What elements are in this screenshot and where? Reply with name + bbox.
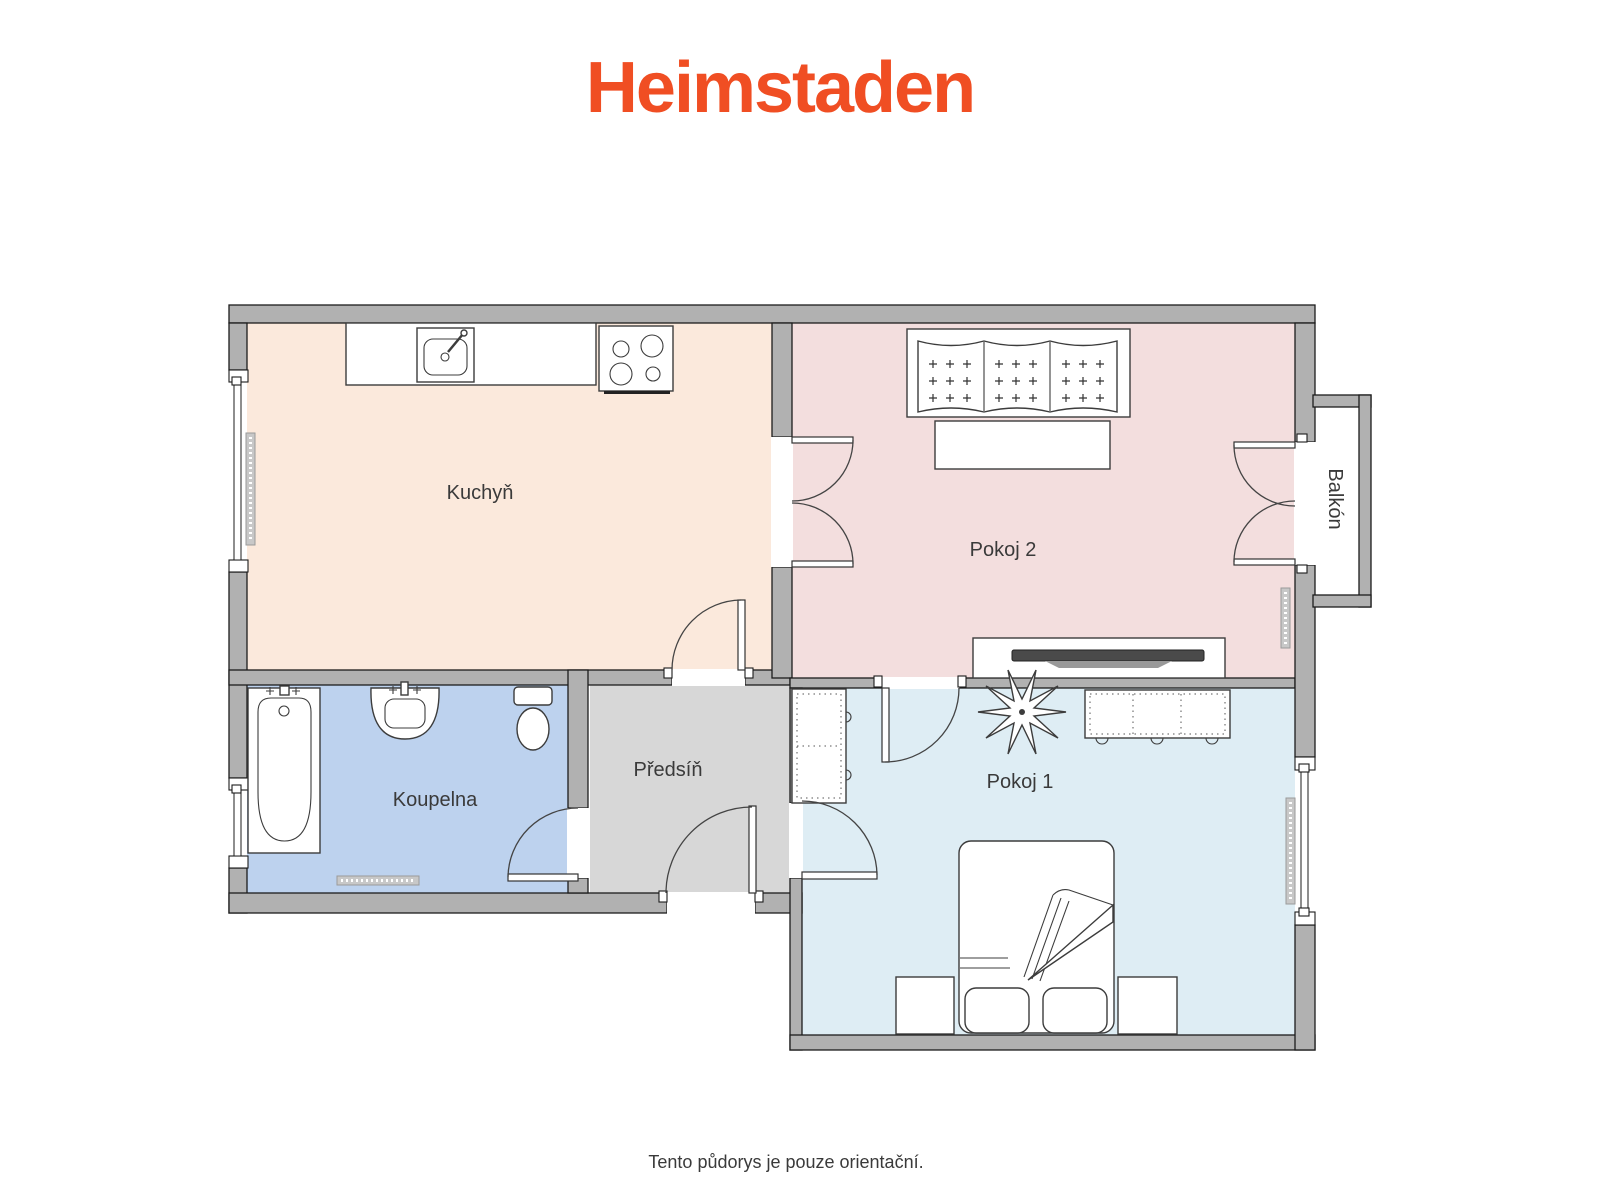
wall-kuchyn-pokoj2-b (772, 567, 792, 678)
wall-predsin-pokoj1-b (790, 878, 802, 1050)
koupelna-window (234, 790, 241, 856)
jamb-notch (745, 668, 753, 678)
footer-disclaimer: Tento půdorys je pouze orientační. (648, 1152, 923, 1172)
wall-right-c (1295, 925, 1315, 1050)
sofa (907, 329, 1130, 417)
wall-right-a (1295, 323, 1315, 442)
jamb-notch (664, 668, 672, 678)
balkon-wall-right (1359, 395, 1371, 607)
pokoj1-radiator (1286, 798, 1295, 904)
bathtub (248, 686, 320, 853)
wall-top (229, 305, 1315, 323)
kuchyn-window-sill-bottom (229, 560, 248, 572)
room-label-pokoj2: Pokoj 2 (970, 539, 1037, 561)
tv (1012, 650, 1204, 661)
kitchen-fixtures (346, 323, 673, 394)
wall-pokoj1-bottom (790, 1035, 1315, 1050)
koupelna-radiator (337, 876, 419, 885)
jamb-notch (1297, 434, 1307, 442)
kitchen-sink (417, 328, 474, 382)
opening-predsin-pokoj1 (789, 803, 803, 878)
opening-balkon (1294, 442, 1316, 565)
jamb-notch (874, 676, 882, 687)
pokoj1-window-handle-2 (1299, 908, 1309, 916)
kuchyn-window-handle (232, 377, 241, 385)
room-label-koupelna: Koupelna (393, 789, 478, 811)
wardrobe (792, 689, 851, 803)
room-label-kuchyn: Kuchyň (447, 482, 514, 504)
wall-bottom-left-a (229, 893, 667, 913)
coffee-table (935, 421, 1110, 469)
toilet (514, 687, 552, 750)
tv-shadow (1045, 661, 1172, 668)
balkon-wall-bottom (1313, 595, 1371, 607)
heimstaden-logo: Heimstaden (586, 48, 974, 128)
wall-pokoj2-pokoj1-a (790, 678, 882, 688)
pillow-right (1043, 988, 1107, 1033)
jamb-notch (958, 676, 966, 687)
pokoj1-window-handle (1299, 764, 1309, 772)
opening-koupelna (567, 808, 589, 878)
wall-left-a (229, 323, 247, 370)
dresser (1085, 690, 1230, 744)
stove-front (604, 391, 670, 394)
kuchyn-radiator (246, 433, 255, 545)
opening-kuchyn-predsin (672, 669, 745, 686)
pokoj1-window (1301, 770, 1308, 912)
jamb-notch (1297, 565, 1307, 573)
pillow-left (965, 988, 1029, 1033)
kuchyn-window (234, 382, 241, 560)
pokoj2-radiator (1281, 588, 1290, 648)
wall-kuchyn-pokoj2-a (772, 323, 792, 437)
room-label-predsin: Předsíň (634, 759, 703, 781)
stove (599, 326, 673, 394)
nightstand-left (896, 977, 954, 1034)
floorplan-svg: Kuchyň Pokoj 2 Koupelna Předsíň Pokoj 1 … (0, 0, 1600, 1200)
opening-entrance (667, 892, 755, 914)
tv-stand (973, 638, 1225, 678)
room-label-pokoj1: Pokoj 1 (987, 771, 1054, 793)
room-predsin-floor (590, 685, 790, 893)
wall-kuchyn-bottom-a (229, 670, 672, 685)
koupelna-window-sill-bottom (229, 856, 248, 868)
koupelna-window-handle (232, 785, 241, 793)
wall-koupelna-predsin-a (568, 670, 588, 808)
floorplan-page: Kuchyň Pokoj 2 Koupelna Předsíň Pokoj 1 … (0, 0, 1600, 1200)
nightstand-right (1118, 977, 1177, 1034)
opening-kuchyn-pokoj2 (771, 437, 793, 567)
wall-right-b (1295, 565, 1315, 757)
room-label-balkon: Balkón (1324, 468, 1346, 529)
opening-pokoj2-pokoj1 (882, 677, 958, 689)
